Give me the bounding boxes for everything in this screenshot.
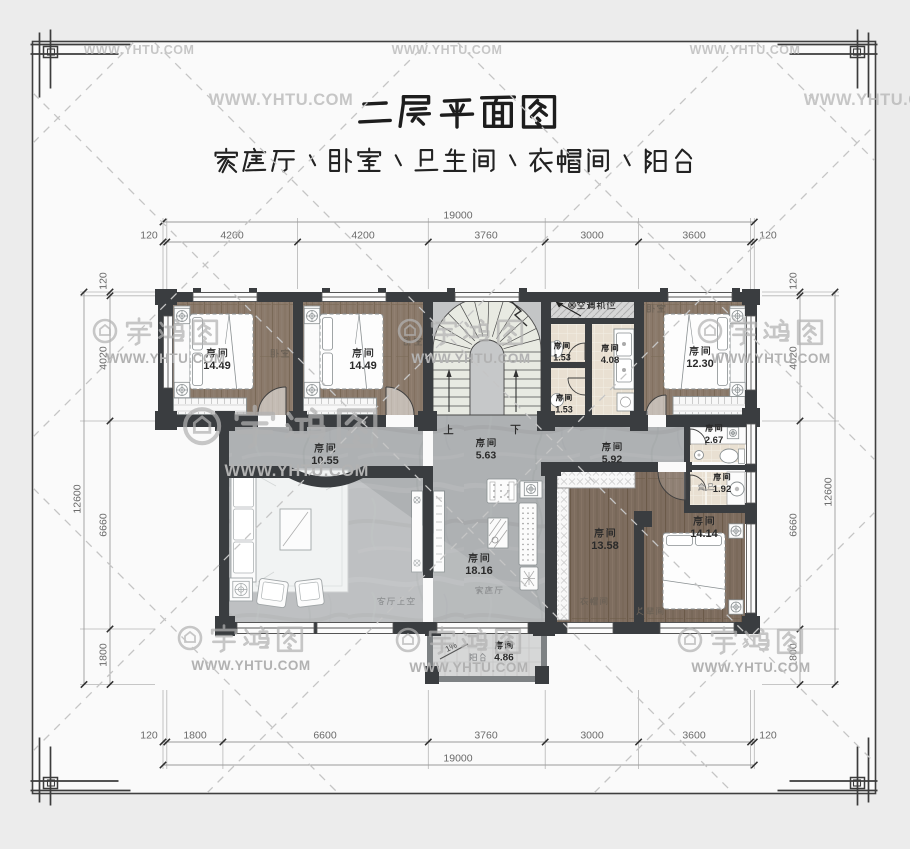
svg-text:19000: 19000 bbox=[443, 753, 472, 765]
svg-text:19000: 19000 bbox=[443, 210, 472, 222]
svg-text:WWW.YHTU.COM: WWW.YHTU.COM bbox=[224, 462, 368, 480]
svg-text:3600: 3600 bbox=[682, 730, 706, 742]
svg-text:WWW.YHTU.COM: WWW.YHTU.COM bbox=[691, 660, 810, 675]
svg-text:6600: 6600 bbox=[313, 730, 337, 742]
svg-text:12600: 12600 bbox=[823, 477, 835, 506]
svg-text:120: 120 bbox=[759, 730, 777, 742]
svg-text:1.53: 1.53 bbox=[553, 353, 571, 363]
svg-text:WWW.YHTU.COM: WWW.YHTU.COM bbox=[411, 351, 530, 366]
svg-text:WWW.YHTU.COM: WWW.YHTU.COM bbox=[84, 43, 195, 57]
svg-text:6660: 6660 bbox=[788, 513, 800, 537]
svg-text:1800: 1800 bbox=[183, 730, 207, 742]
svg-text:6660: 6660 bbox=[98, 513, 110, 537]
svg-text:3760: 3760 bbox=[474, 730, 498, 742]
svg-text:18.16: 18.16 bbox=[465, 565, 493, 577]
svg-text:120: 120 bbox=[140, 230, 158, 242]
svg-text:3000: 3000 bbox=[580, 730, 604, 742]
svg-text:WWW.YHTU.COM: WWW.YHTU.COM bbox=[392, 43, 503, 57]
svg-text:WWW.YHTU.COM: WWW.YHTU.COM bbox=[711, 351, 830, 366]
svg-text:12.30: 12.30 bbox=[686, 358, 714, 370]
svg-text:14.14: 14.14 bbox=[690, 528, 718, 540]
svg-text:2.67: 2.67 bbox=[705, 435, 724, 446]
svg-text:WWW.YHTU.COM: WWW.YHTU.COM bbox=[191, 658, 310, 673]
svg-text:120: 120 bbox=[788, 272, 800, 290]
svg-text:4.08: 4.08 bbox=[601, 355, 620, 366]
svg-text:13.58: 13.58 bbox=[591, 540, 619, 552]
svg-text:WWW.YHTU.COM: WWW.YHTU.COM bbox=[690, 43, 801, 57]
svg-text:4200: 4200 bbox=[220, 230, 244, 242]
svg-text:14.49: 14.49 bbox=[349, 360, 377, 372]
svg-text:120: 120 bbox=[759, 230, 777, 242]
svg-text:5.63: 5.63 bbox=[476, 450, 497, 462]
svg-text:WWW.YHTU.COM: WWW.YHTU.COM bbox=[409, 660, 528, 675]
svg-text:1.53: 1.53 bbox=[555, 405, 573, 415]
svg-text:WWW.YHTU.COM: WWW.YHTU.COM bbox=[106, 351, 225, 366]
svg-text:4200: 4200 bbox=[351, 230, 375, 242]
svg-text:1800: 1800 bbox=[98, 643, 110, 667]
svg-text:5.92: 5.92 bbox=[602, 454, 623, 466]
svg-text:3760: 3760 bbox=[474, 230, 498, 242]
svg-text:3000: 3000 bbox=[580, 230, 604, 242]
svg-text:120: 120 bbox=[98, 272, 110, 290]
svg-text:3600: 3600 bbox=[682, 230, 706, 242]
svg-text:WWW.YHTU.COM: WWW.YHTU.COM bbox=[209, 91, 353, 109]
svg-text:1.92: 1.92 bbox=[713, 484, 732, 495]
svg-text:120: 120 bbox=[140, 730, 158, 742]
svg-text:12600: 12600 bbox=[72, 484, 84, 513]
